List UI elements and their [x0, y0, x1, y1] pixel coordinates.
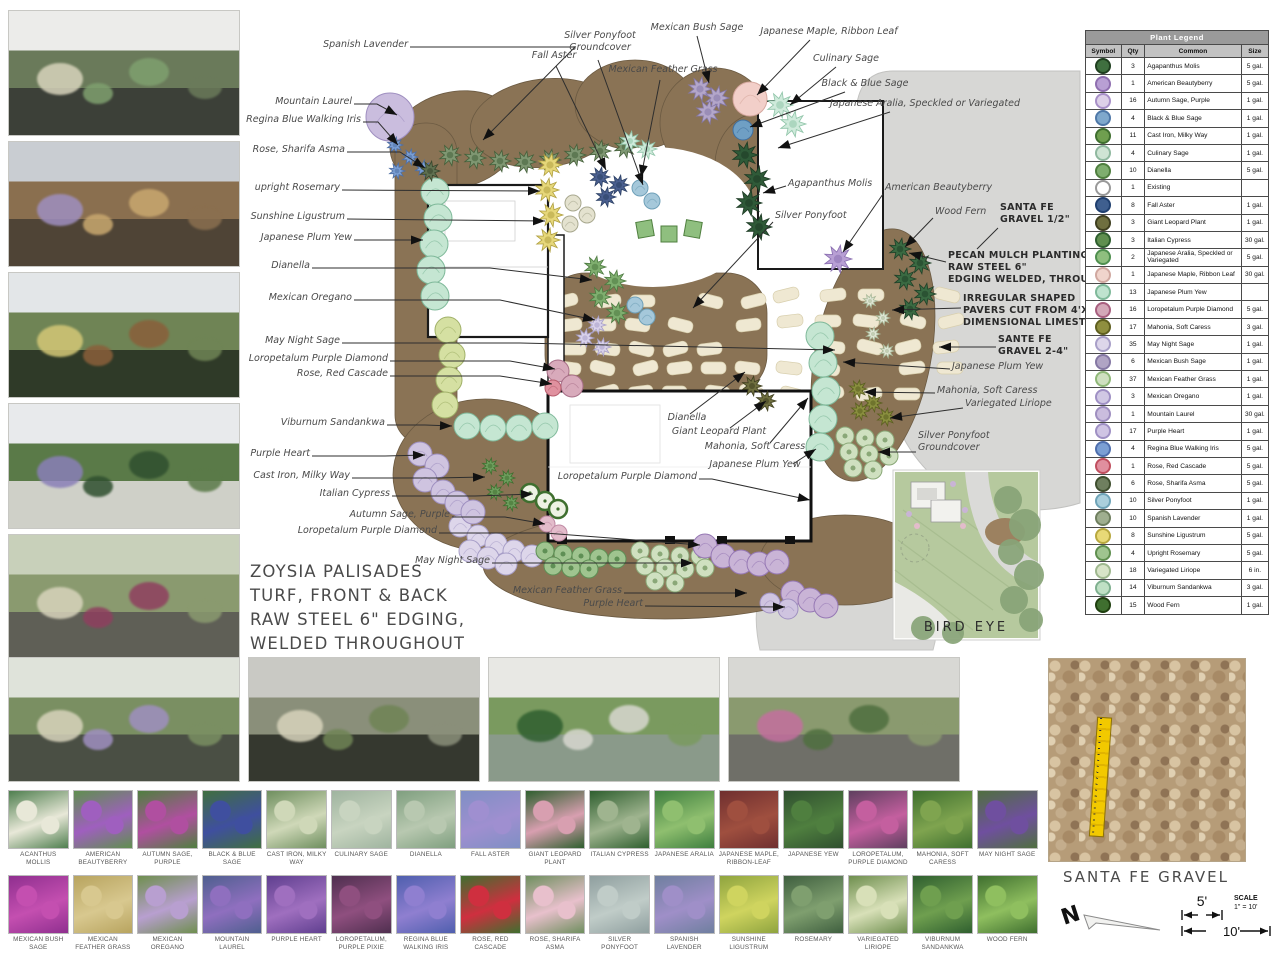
- legend-row: 11Cast Iron, Milky Way1 gal.: [1086, 127, 1269, 144]
- render-foliage-blob: [369, 705, 409, 733]
- plant-photo: [719, 875, 780, 934]
- plant-photo-label: MEXICAN OREGANO: [137, 936, 198, 952]
- plant-photo-label: CAST IRON, MILKY WAY: [266, 851, 327, 867]
- legend-qty: 3: [1121, 231, 1145, 248]
- render-foliage-blob: [188, 468, 222, 492]
- plant-photo-label: MOUNTAIN LAUREL: [202, 936, 263, 952]
- plan-callout-label: Mountain Laurel: [275, 96, 352, 107]
- plan-callout-label: Mexican Feather Grass: [608, 64, 717, 75]
- render-foliage-blob: [37, 587, 83, 619]
- plan-callout-label: Silver Ponyfoot: [775, 210, 848, 221]
- plant-photo: [73, 790, 134, 849]
- legend-row: 3Agapanthus Molis5 gal.: [1086, 58, 1269, 75]
- plant-symbol-icon: [1095, 563, 1111, 579]
- plan-callout-label: Loropetalum Purple Diamond: [249, 353, 389, 364]
- legend-size: [1241, 284, 1268, 301]
- legend-row: 35May Night Sage1 gal.: [1086, 336, 1269, 353]
- legend-size: 5 gal.: [1241, 162, 1268, 179]
- render-foliage-blob: [83, 607, 113, 628]
- plant-photo-label: MEXICAN BUSH SAGE: [8, 936, 69, 952]
- plant-photo: [912, 790, 973, 849]
- legend-qty: 1: [1121, 75, 1145, 92]
- plan-callout-label: Dianella: [668, 412, 707, 423]
- plant-photo-label: AMERICAN BEAUTYBERRY: [73, 851, 134, 867]
- legend-row: 4Culinary Sage1 gal.: [1086, 144, 1269, 161]
- plant-symbol-icon: [1095, 493, 1111, 509]
- plan-callout-label: Groundcover: [569, 42, 632, 53]
- plant-photo-tile: CULINARY SAGE: [331, 790, 392, 867]
- plan-callout-label: Purple Heart: [250, 448, 311, 459]
- plant-photo: [654, 790, 715, 849]
- legend-size: 5 gal.: [1241, 301, 1268, 318]
- legend-header-row: Symbol Qty Common Size: [1086, 45, 1269, 58]
- plan-callout-label: Mahonia, Soft Caress: [705, 441, 805, 452]
- scale-ten-label: 10': [1223, 924, 1240, 939]
- plant-photo: [73, 875, 134, 934]
- plant-photo-tile: AMERICAN BEAUTYBERRY: [73, 790, 134, 867]
- legend-size: 5 gal.: [1241, 544, 1268, 561]
- legend-qty: 13: [1121, 284, 1145, 301]
- plan-callout-label: upright Rosemary: [255, 182, 341, 193]
- plan-callout-label: IRREGULAR SHAPED: [963, 293, 1075, 304]
- legend-common: Fall Aster: [1145, 197, 1241, 214]
- legend-size: 1 gal.: [1241, 197, 1268, 214]
- turf-note: ZOYSIA PALISADES TURF, FRONT & BACK RAW …: [250, 560, 490, 656]
- plant-photo-label: JAPANESE YEW: [783, 851, 844, 859]
- plan-callout-label: May Night Sage: [265, 335, 340, 346]
- legend-size: 5 gal.: [1241, 475, 1268, 492]
- plant-symbol-icon: [1095, 232, 1111, 248]
- legend-size: 5 gal.: [1241, 527, 1268, 544]
- legend-size: 1 gal.: [1241, 597, 1268, 614]
- legend-qty: 37: [1121, 371, 1145, 388]
- legend-row: 1Rose, Red Cascade5 gal.: [1086, 457, 1269, 474]
- legend-row: 1American Beautyberry5 gal.: [1086, 75, 1269, 92]
- plan-callout-label: Loropetalum Purple Diamond: [558, 471, 698, 482]
- render-foliage-blob: [129, 451, 169, 479]
- plan-callout-label: Japanese Plum Yew: [259, 232, 352, 243]
- legend-qty: 3: [1121, 58, 1145, 75]
- plant-photo-label: DIANELLA: [396, 851, 457, 859]
- plant-photo-tile: FALL ASTER: [460, 790, 521, 867]
- plant-photo-label: REGINA BLUE WALKING IRIS: [396, 936, 457, 952]
- plan-callout-label: Rose, Sharifa Asma: [253, 144, 346, 155]
- plant-symbol-icon: [1095, 371, 1111, 387]
- render-thumbnail-row: [8, 657, 960, 782]
- plant-photo-tile: ROSEMARY: [783, 875, 844, 952]
- plant-photo: [460, 790, 521, 849]
- render-foliage-blob: [37, 325, 83, 357]
- plant-photo-label: MAY NIGHT SAGE: [977, 851, 1038, 859]
- legend-size: 1 gal.: [1241, 423, 1268, 440]
- plant-photo-tile: JAPANESE MAPLE, RIBBON-LEAF: [719, 790, 780, 867]
- legend-qty: 35: [1121, 336, 1145, 353]
- legend-common: Dianella: [1145, 162, 1241, 179]
- legend-row: 17Purple Heart1 gal.: [1086, 423, 1269, 440]
- plant-photo-label: LOROPETALUM, PURPLE PIXIE: [331, 936, 392, 952]
- render-foliage-blob: [428, 722, 462, 746]
- legend-qty: 3: [1121, 388, 1145, 405]
- render-foliage-blob: [323, 729, 353, 750]
- plan-callout-label: Mahonia, Soft Caress: [937, 385, 1037, 396]
- plant-photo-tile: MOUNTAIN LAUREL: [202, 875, 263, 952]
- legend-common: Japanese Plum Yew: [1145, 284, 1241, 301]
- plant-photo-label: ITALIAN CYPRESS: [589, 851, 650, 859]
- plan-callout-label: Mexican Feather Grass: [513, 585, 622, 596]
- legend-qty: 11: [1121, 127, 1145, 144]
- legend-size: 1 gal.: [1241, 127, 1268, 144]
- plan-callout-label: SANTE FE: [998, 334, 1052, 345]
- plant-symbol-icon: [1095, 215, 1111, 231]
- legend-row: 6Mexican Bush Sage1 gal.: [1086, 353, 1269, 370]
- legend-size: 5 gal.: [1241, 58, 1268, 75]
- legend-common: Black & Blue Sage: [1145, 110, 1241, 127]
- render-foliage-blob: [849, 705, 889, 733]
- plan-callout-label: Sunshine Ligustrum: [251, 211, 345, 222]
- legend-row: 37Mexican Feather Grass1 gal.: [1086, 371, 1269, 388]
- render-foliage-blob: [83, 214, 113, 235]
- plan-callout-label: Giant Leopard Plant: [672, 426, 768, 437]
- plant-photo-tile: MAHONIA, SOFT CARESS: [912, 790, 973, 867]
- legend-row: 10Spanish Lavender1 gal.: [1086, 510, 1269, 527]
- plan-callout-label: GRAVEL 2-4": [998, 346, 1068, 357]
- legend-size: 1 gal.: [1241, 371, 1268, 388]
- patio-stone-path-view: [8, 10, 240, 136]
- plant-photo: [202, 875, 263, 934]
- plant-photo: [589, 875, 650, 934]
- plant-photo-tile: MEXICAN BUSH SAGE: [8, 875, 69, 952]
- plant-symbol-icon: [1095, 476, 1111, 492]
- legend-common: Rose, Sharifa Asma: [1145, 475, 1241, 492]
- render-foliage-blob: [803, 729, 833, 750]
- legend-common: Mountain Laurel: [1145, 405, 1241, 422]
- legend-common: Sunshine Ligustrum: [1145, 527, 1241, 544]
- plant-photo-label: SILVER PONYFOOT: [589, 936, 650, 952]
- legend-qty: 10: [1121, 162, 1145, 179]
- legend-common: Wood Fern: [1145, 597, 1241, 614]
- turf-note-line: WELDED THROUGHOUT: [250, 632, 490, 656]
- legend-qty: 16: [1121, 92, 1145, 109]
- plan-callout-label: Groundcover: [918, 442, 981, 453]
- plant-photo-label: PURPLE HEART: [266, 936, 327, 944]
- plant-photo: [719, 790, 780, 849]
- legend-size: 3 gal.: [1241, 318, 1268, 335]
- plant-photo-tile: ITALIAN CYPRESS: [589, 790, 650, 867]
- legend-size: 1 gal.: [1241, 388, 1268, 405]
- legend-qty: 17: [1121, 318, 1145, 335]
- legend-row: 4Upright Rosemary5 gal.: [1086, 544, 1269, 561]
- legend-header-common: Common: [1145, 45, 1241, 58]
- legend-row: 1Existing: [1086, 179, 1269, 196]
- legend-row: 3Italian Cypress30 gal.: [1086, 231, 1269, 248]
- render-foliage-blob: [188, 206, 222, 230]
- legend-common: Mexican Feather Grass: [1145, 371, 1241, 388]
- plant-photo-label: JAPANESE ARALIA: [654, 851, 715, 859]
- plan-callout-label: Rose, Red Cascade: [297, 368, 388, 379]
- render-foliage-blob: [668, 722, 702, 746]
- plan-callout-label: Japanese Plum Yew: [707, 459, 800, 470]
- legend-qty: 4: [1121, 110, 1145, 127]
- plant-photo-tile: SILVER PONYFOOT: [589, 875, 650, 952]
- plant-symbol-icon: [1095, 545, 1111, 561]
- legend-size: 1 gal.: [1241, 110, 1268, 127]
- scale-five-label: 5': [1197, 893, 1207, 909]
- legend-qty: 10: [1121, 492, 1145, 509]
- plant-photo: [977, 790, 1038, 849]
- legend-common: Japanese Aralia, Speckled or Variegated: [1145, 249, 1241, 266]
- plant-symbol-icon: [1095, 110, 1111, 126]
- house-front-bed-view: [8, 403, 240, 529]
- render-foliage-blob: [129, 320, 169, 348]
- plant-photo-tile: LOROPETALUM, PURPLE DIAMOND: [848, 790, 909, 867]
- render-foliage-blob: [129, 705, 169, 733]
- plant-photo: [977, 875, 1038, 934]
- legend-common: Viburnum Sandankwa: [1145, 579, 1241, 596]
- legend-qty: 4: [1121, 440, 1145, 457]
- backyard-path-view: [8, 534, 240, 660]
- plant-photo: [8, 875, 69, 934]
- plant-photo-tile: MAY NIGHT SAGE: [977, 790, 1038, 867]
- plant-photo: [525, 875, 586, 934]
- scale-word: SCALE: [1234, 895, 1258, 902]
- plant-photo-label: BLACK & BLUE SAGE: [202, 851, 263, 867]
- side-path-render: [248, 657, 480, 782]
- legend-qty: 6: [1121, 475, 1145, 492]
- turf-note-line: ZOYSIA PALISADES: [250, 560, 490, 584]
- plant-photo: [396, 875, 457, 934]
- legend-common: Cast Iron, Milky Way: [1145, 127, 1241, 144]
- plan-callout-label: PAVERS CUT FROM 4'X2': [963, 305, 1085, 316]
- legend-header-size: Size: [1241, 45, 1268, 58]
- plan-callout-label: RAW STEEL 6": [948, 262, 1027, 273]
- plant-photo: [331, 875, 392, 934]
- plant-symbol-icon: [1095, 389, 1111, 405]
- plant-symbol-icon: [1095, 458, 1111, 474]
- plant-symbol-icon: [1095, 76, 1111, 92]
- render-foliage-blob: [129, 189, 169, 217]
- plan-callout-label: Japanese Plum Yew: [950, 361, 1043, 372]
- legend-qty: 3: [1121, 214, 1145, 231]
- plan-callout-label: Cast Iron, Milky Way: [253, 470, 350, 481]
- legend-header-qty: Qty: [1121, 45, 1145, 58]
- plant-photo-tile: DIANELLA: [396, 790, 457, 867]
- plant-symbol-icon: [1095, 441, 1111, 457]
- plant-symbol-icon: [1095, 128, 1111, 144]
- render-thumbnail-column: [8, 10, 240, 660]
- plan-callout-label: Regina Blue Walking Iris: [246, 114, 361, 125]
- plant-symbol-icon: [1095, 197, 1111, 213]
- plan-callout-label: EDGING WELDED, THROUGHOUT: [948, 274, 1085, 285]
- legend-qty: 15: [1121, 597, 1145, 614]
- legend-common: Giant Leopard Plant: [1145, 214, 1241, 231]
- legend-common: Mexican Bush Sage: [1145, 353, 1241, 370]
- legend-size: [1241, 179, 1268, 196]
- legend-qty: 14: [1121, 579, 1145, 596]
- plan-callout-label: Agapanthus Molis: [787, 178, 872, 189]
- legend-size: 3 gal.: [1241, 579, 1268, 596]
- plant-symbol-icon: [1095, 423, 1111, 439]
- scale-ratio: 1" = 10': [1234, 904, 1257, 911]
- render-foliage-blob: [37, 710, 83, 742]
- plant-photo: [396, 790, 457, 849]
- bird-eye-label: BIRD EYE: [924, 620, 1008, 635]
- plan-callout-label: American Beautyberry: [884, 182, 992, 193]
- plant-photo-label: ROSE, SHARIFA ASMA: [525, 936, 586, 952]
- plan-callout-label: Silver Ponyfoot: [564, 30, 637, 41]
- plan-callout-label: Purple Heart: [583, 598, 644, 609]
- legend-common: Variegated Liriope: [1145, 562, 1241, 579]
- plan-callout-label: Culinary Sage: [813, 53, 879, 64]
- plan-callout-label: Viburnum Sandankwa: [281, 417, 385, 428]
- plant-photo-tile: ROSE, RED CASCADE: [460, 875, 521, 952]
- legend-row: 3Giant Leopard Plant1 gal.: [1086, 214, 1269, 231]
- legend-row: 4Regina Blue Walking Iris5 gal.: [1086, 440, 1269, 457]
- legend-common: May Night Sage: [1145, 336, 1241, 353]
- legend-title: Plant Legend: [1086, 31, 1269, 45]
- plant-photo-label: ACANTHUS MOLLIS: [8, 851, 69, 867]
- legend-row: 16Loropetalum Purple Diamond5 gal.: [1086, 301, 1269, 318]
- plant-photo: [783, 790, 844, 849]
- north-arrow: N: [1056, 893, 1176, 943]
- plant-symbol-icon: [1095, 510, 1111, 526]
- plan-callout-label: Japanese Maple, Ribbon Leaf: [758, 26, 899, 37]
- plant-photo-tile: GIANT LEOPARD PLANT: [525, 790, 586, 867]
- plan-callout-label: Silver Ponyfoot: [918, 430, 991, 441]
- plant-photo-tile: JAPANESE ARALIA: [654, 790, 715, 867]
- plant-photo: [460, 875, 521, 934]
- plant-photo-label: SUNSHINE LIGUSTRUM: [719, 936, 780, 952]
- legend-common: Rose, Red Cascade: [1145, 457, 1241, 474]
- plant-photo-tile: CAST IRON, MILKY WAY: [266, 790, 327, 867]
- render-foliage-blob: [37, 63, 83, 95]
- legend-row: 4Black & Blue Sage1 gal.: [1086, 110, 1269, 127]
- plant-photo-label: CULINARY SAGE: [331, 851, 392, 859]
- plan-callout-label: Autumn Sage, Purple: [349, 509, 451, 520]
- render-foliage-blob: [83, 83, 113, 104]
- plant-photo: [783, 875, 844, 934]
- plant-photo-tile: VIBURNUM SANDANKWA: [912, 875, 973, 952]
- render-foliage-blob: [517, 710, 563, 742]
- legend-common: Purple Heart: [1145, 423, 1241, 440]
- legend-row: 2Japanese Aralia, Speckled or Variegated…: [1086, 249, 1269, 266]
- plant-photo: [266, 875, 327, 934]
- legend-common: Silver Ponyfoot: [1145, 492, 1241, 509]
- plant-photo-label: ROSEMARY: [783, 936, 844, 944]
- plant-symbol-icon: [1095, 284, 1111, 300]
- plan-callout-label: GRAVEL 1/2": [1000, 214, 1070, 225]
- plant-symbol-icon: [1095, 354, 1111, 370]
- render-foliage-blob: [129, 58, 169, 86]
- legend-row: 16Autumn Sage, Purple1 gal.: [1086, 92, 1269, 109]
- turf-note-line: TURF, FRONT & BACK: [250, 584, 490, 608]
- plant-symbol-icon: [1095, 58, 1111, 74]
- render-foliage-blob: [757, 710, 803, 742]
- plant-photo-label: AUTUMN SAGE, PURPLE: [137, 851, 198, 867]
- legend-qty: 17: [1121, 423, 1145, 440]
- plant-photo-tile: SUNSHINE LIGUSTRUM: [719, 875, 780, 952]
- legend-common: Upright Rosemary: [1145, 544, 1241, 561]
- plant-photo-tile: LOROPETALUM, PURPLE PIXIE: [331, 875, 392, 952]
- legend-common: Japanese Maple, Ribbon Leaf: [1145, 266, 1241, 283]
- plan-callout-label: Mexican Oregano: [269, 292, 352, 303]
- render-foliage-blob: [83, 729, 113, 750]
- plant-photo: [848, 790, 909, 849]
- gravel-caption: SANTA FE GRAVEL: [1048, 868, 1244, 886]
- plant-photo-tile: ROSE, SHARIFA ASMA: [525, 875, 586, 952]
- render-foliage-blob: [188, 75, 222, 99]
- driveway-bed-render: [728, 657, 960, 782]
- santa-fe-gravel-photo: [1048, 658, 1246, 862]
- landscape-plan-sheet: { "plan": { "note_lines": ["ZOYSIA PALIS…: [0, 0, 1280, 960]
- plant-photo-tile: MEXICAN OREGANO: [137, 875, 198, 952]
- plant-photo-label: SPANISH LAVENDER: [654, 936, 715, 952]
- plant-photo-tile: BLACK & BLUE SAGE: [202, 790, 263, 867]
- legend-qty: 1: [1121, 457, 1145, 474]
- plant-symbol-icon: [1095, 597, 1111, 613]
- deck-pergola-view: [8, 141, 240, 267]
- plant-photo-tile: VARIEGATED LIRIOPE: [848, 875, 909, 952]
- plant-symbol-icon: [1095, 336, 1111, 352]
- legend-common: Loropetalum Purple Diamond: [1145, 301, 1241, 318]
- legend-common: American Beautyberry: [1145, 75, 1241, 92]
- legend-size: 1 gal.: [1241, 144, 1268, 161]
- legend-common: Culinary Sage: [1145, 144, 1241, 161]
- plan-callout-label: Mexican Bush Sage: [651, 22, 744, 33]
- plan-callout-label: Loropetalum Purple Diamond: [298, 525, 438, 536]
- legend-size: 1 gal.: [1241, 353, 1268, 370]
- plan-callout-label: Japanese Aralia, Speckled or Variegated: [828, 98, 1021, 109]
- north-label: N: [1058, 901, 1083, 930]
- plant-symbol-icon: [1095, 180, 1111, 196]
- legend-common: Regina Blue Walking Iris: [1145, 440, 1241, 457]
- plant-photo-label: ROSE, RED CASCADE: [460, 936, 521, 952]
- plant-photo: [912, 875, 973, 934]
- plan-callout-label: DIMENSIONAL LIMESTONE: [963, 317, 1085, 328]
- legend-common: Spanish Lavender: [1145, 510, 1241, 527]
- plant-symbol-icon: [1095, 93, 1111, 109]
- legend-common: Existing: [1145, 179, 1241, 196]
- legend-qty: 4: [1121, 544, 1145, 561]
- porch-grasses-view: [8, 272, 240, 398]
- plant-symbol-icon: [1095, 580, 1111, 596]
- front-yard-render: [488, 657, 720, 782]
- render-foliage-blob: [563, 729, 593, 750]
- plant-photo-label: WOOD FERN: [977, 936, 1038, 944]
- render-foliage-blob: [908, 722, 942, 746]
- plant-photo: [202, 790, 263, 849]
- legend-size: 30 gal.: [1241, 266, 1268, 283]
- legend-qty: 18: [1121, 562, 1145, 579]
- legend-row: 8Fall Aster1 gal.: [1086, 197, 1269, 214]
- legend-qty: 16: [1121, 301, 1145, 318]
- plant-photo-tile: MEXICAN FEATHER GRASS: [73, 875, 134, 952]
- legend-size: 5 gal.: [1241, 249, 1268, 266]
- legend-common: Italian Cypress: [1145, 231, 1241, 248]
- legend-row: 3Mexican Oregano1 gal.: [1086, 388, 1269, 405]
- plant-photo-tile: ACANTHUS MOLLIS: [8, 790, 69, 867]
- legend-header-symbol: Symbol: [1086, 45, 1122, 58]
- legend-size: 30 gal.: [1241, 231, 1268, 248]
- legend-row: 6Rose, Sharifa Asma5 gal.: [1086, 475, 1269, 492]
- plant-symbol-icon: [1095, 145, 1111, 161]
- plant-photo: [654, 875, 715, 934]
- plant-symbol-icon: [1095, 319, 1111, 335]
- legend-qty: 10: [1121, 510, 1145, 527]
- plant-photo-tile: WOOD FERN: [977, 875, 1038, 952]
- legend-row: 10Silver Ponyfoot1 gal.: [1086, 492, 1269, 509]
- plant-photo: [331, 790, 392, 849]
- render-foliage-blob: [37, 456, 83, 488]
